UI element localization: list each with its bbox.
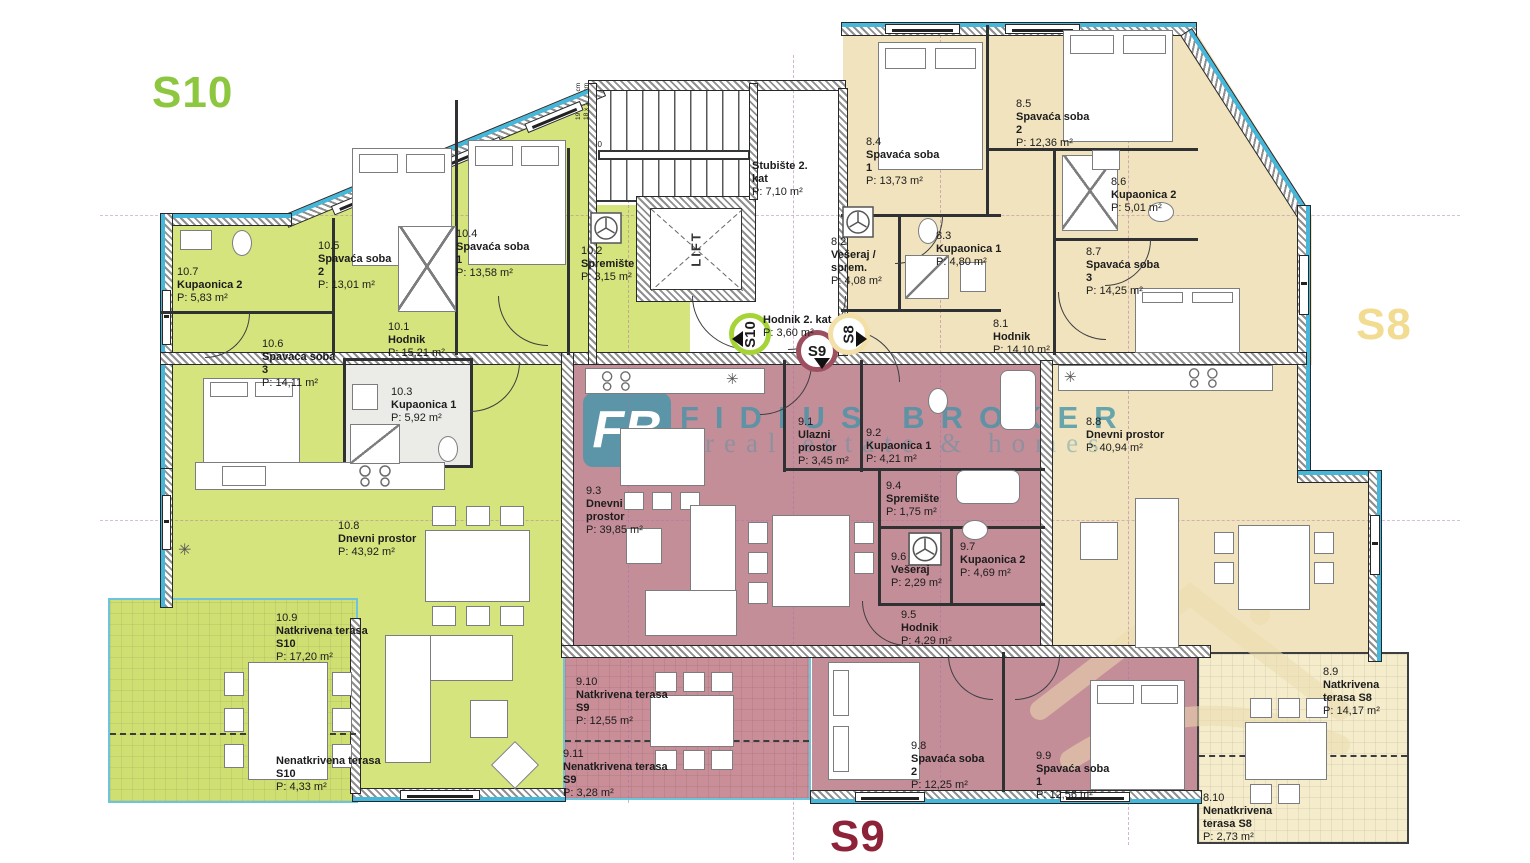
toilet — [438, 436, 458, 462]
s10-area-hodnik-east — [592, 298, 690, 354]
hob-icon — [1185, 367, 1227, 389]
room-label-9-5: 9.5HodnikP: 4,29 m² — [901, 609, 971, 648]
chair — [711, 672, 733, 692]
sink — [180, 230, 212, 250]
wall-top-core — [588, 80, 846, 91]
room-label-9-4: 9.4SpremišteP: 1,75 m² — [886, 480, 971, 519]
kitchen-counter — [1058, 365, 1273, 391]
title-s10: S10 — [152, 68, 233, 118]
dining-table — [1245, 722, 1327, 780]
room-label-10-1: 10.1HodnikP: 15,21 m² — [388, 321, 478, 360]
room-label-8-6: 8.6Kupaonica 2P: 5,01 m² — [1111, 176, 1206, 215]
window — [885, 24, 960, 34]
room-label-10-8: 10.8Dnevni prostorP: 43,92 m² — [338, 520, 418, 559]
lift-label: LIFT — [689, 231, 704, 266]
room-label-10-3: 10.3Kupaonica 1P: 5,92 m² — [391, 386, 486, 425]
chair — [224, 744, 244, 768]
room-label-10-4: 10.4Spavaća soba 1P: 13,58 m² — [456, 228, 536, 280]
washing-machine — [352, 384, 378, 410]
coffee-table — [1080, 522, 1118, 560]
window — [855, 792, 925, 802]
room-label-9-3: 9.3Dnevni prostorP: 39,85 m² — [586, 485, 661, 537]
lift-cab: LIFT — [650, 208, 742, 290]
badge-s10-label: S10 — [741, 321, 758, 348]
partition — [986, 25, 989, 217]
sofa — [645, 590, 737, 636]
washer-icon — [590, 212, 622, 244]
room-label-hodnik-2kat: Hodnik 2. katP: 3,60 m² — [763, 314, 873, 340]
chair — [748, 522, 768, 544]
chair — [1250, 698, 1272, 718]
hob-icon — [598, 370, 640, 392]
chair — [854, 522, 874, 544]
partition — [1053, 148, 1056, 241]
chair — [1214, 532, 1234, 554]
title-s9: S9 — [830, 812, 886, 862]
partition — [841, 309, 1001, 312]
room-label-8-8: 8.8Dnevni prostorP: 40,94 m² — [1086, 416, 1166, 455]
chair — [1314, 532, 1334, 554]
room-label-8-10: 8.10Nenatkrivena terasa S8P: 2,73 m² — [1203, 792, 1298, 844]
partition — [567, 148, 570, 355]
washer-icon — [842, 206, 874, 238]
chair — [1314, 562, 1334, 584]
room-label-9-11: 9.11Nenatkrivena terasa S9P: 3,28 m² — [563, 748, 668, 800]
title-s8: S8 — [1356, 300, 1412, 350]
bed — [203, 378, 300, 463]
sofa — [385, 635, 431, 763]
room-label-8-7: 8.7Spavaća soba 3P: 14,25 m² — [1086, 246, 1166, 298]
wall-divider-s10-s9 — [561, 352, 574, 658]
chair — [224, 708, 244, 732]
chair — [854, 552, 874, 574]
bed — [828, 662, 920, 780]
room-label-8-4: 8.4Spavaća soba 1P: 13,73 m² — [866, 136, 946, 188]
chair — [432, 506, 456, 526]
chair — [711, 750, 733, 770]
wall-top-s10 — [160, 213, 292, 226]
room-label-9-1: 9.1Ulazni prostorP: 3,45 m² — [798, 416, 858, 468]
sofa — [1135, 498, 1179, 648]
shower — [398, 226, 456, 312]
chair — [500, 606, 524, 626]
chair — [466, 606, 490, 626]
room-label-8-1: 8.1HodnikP: 14,10 m² — [993, 318, 1073, 357]
chair — [1278, 698, 1300, 718]
shower — [350, 424, 400, 464]
sink — [1092, 150, 1120, 170]
room-label-terasa-s10-open: Nenatkrivena terasa S10P: 4,33 m² — [276, 755, 381, 794]
room-label-10-6: 10.6Spavaća soba 3P: 14,11 m² — [262, 338, 342, 390]
chair — [332, 708, 352, 732]
wall-spine-lower — [561, 645, 1211, 658]
coffee-table — [470, 700, 508, 738]
partition — [1002, 652, 1005, 792]
window — [1299, 255, 1309, 315]
room-label-8-9: 8.9Natkrivena terasa S8P: 14,17 m² — [1323, 666, 1403, 718]
room-label-9-8: 9.8Spavaća soba 2P: 12,25 m² — [911, 740, 991, 792]
chair — [683, 750, 705, 770]
wall-divider-s9-s8 — [1040, 360, 1053, 658]
wall-right-upper — [1297, 205, 1311, 480]
toilet — [918, 218, 938, 244]
room-label-9-10: 9.10Natkrivena terasa S9P: 12,55 m² — [576, 676, 671, 728]
hob-icon — [355, 464, 401, 488]
room-label-9-6: 9.6VešerajP: 2,29 m² — [891, 551, 961, 590]
kitchen-sink — [222, 466, 266, 486]
room-label-9-2: 9.2Kupaonica 1P: 4,21 m² — [866, 427, 961, 466]
badge-s9-label: S9 — [808, 343, 826, 360]
partition — [878, 526, 881, 606]
chair — [1214, 562, 1234, 584]
room-label-8-2: 8.2Vešeraj / sprem.P: 4,08 m² — [831, 236, 906, 288]
window — [162, 495, 171, 550]
chair — [224, 672, 244, 696]
room-label-10-5: 10.5Spavaća soba 2P: 13,01 m² — [318, 240, 398, 292]
room-label-stubiste: Stubište 2. katP: 7,10 m² — [752, 160, 814, 199]
window — [400, 790, 480, 800]
floor-plan: FB FIDIUS BROKER real estate & homes 19 … — [0, 0, 1530, 863]
room-label-9-9: 9.9Spavaća soba 1P: 12,56 m² — [1036, 750, 1116, 802]
freezer-icon: ✳ — [726, 370, 739, 388]
stair-handrail — [598, 150, 750, 160]
dining-table — [1238, 525, 1310, 610]
toilet — [928, 388, 948, 414]
window — [162, 290, 171, 345]
room-label-10-2: 10.2SpremišteP: 3,15 m² — [581, 245, 651, 284]
room-label-10-7: 10.7Kupaonica 2P: 5,83 m² — [177, 266, 272, 305]
chair — [500, 506, 524, 526]
bathtub — [1000, 370, 1036, 430]
toilet — [962, 520, 988, 540]
chair — [466, 506, 490, 526]
partition — [343, 358, 346, 468]
window — [1370, 515, 1380, 575]
chair — [332, 672, 352, 696]
freezer-icon: ✳ — [178, 540, 191, 560]
chair — [683, 672, 705, 692]
arrow-left-icon — [732, 331, 743, 347]
room-label-8-3: 8.3Kupaonica 1P: 4,80 m² — [936, 230, 1031, 269]
partition — [878, 470, 881, 528]
room-label-10-9: 10.9Natkrivena terasa S10P: 17,20 m² — [276, 612, 371, 664]
dining-table — [772, 515, 850, 607]
dining-table — [425, 530, 530, 602]
chair — [748, 552, 768, 574]
arrow-down-icon — [814, 358, 830, 369]
staircase — [592, 83, 755, 202]
freezer-icon: ✳ — [1064, 368, 1077, 386]
chair — [432, 606, 456, 626]
toilet — [232, 230, 252, 256]
room-label-9-7: 9.7Kupaonica 2P: 4,69 m² — [960, 541, 1055, 580]
chair — [748, 582, 768, 604]
room-label-8-5: 8.5Spavaća soba 2P: 12,36 m² — [1016, 98, 1096, 150]
kitchen-island — [620, 428, 705, 486]
